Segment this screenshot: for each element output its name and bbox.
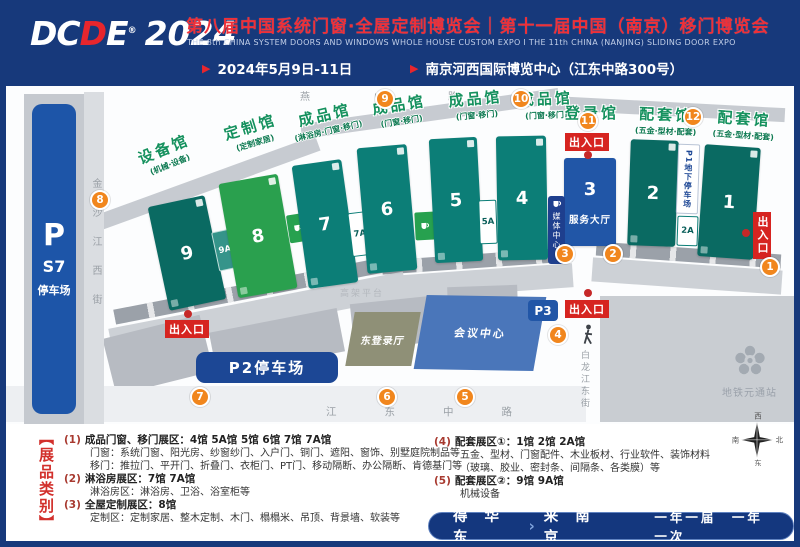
entrance-dot — [584, 151, 592, 159]
slogan-text: 得 华 东 — [453, 505, 520, 547]
pavilion-sub: (五金·型材·配套) — [695, 127, 792, 145]
compass-icon: 西 北 东 南 — [729, 410, 785, 466]
legend-item-line: 淋浴房区：淋浴房、卫浴、浴室柜等 — [90, 486, 462, 499]
legend-item-number: (4) — [434, 436, 451, 448]
entrance-dot — [184, 310, 192, 318]
compass-east: 东 — [754, 458, 761, 466]
pavilion-name: 定制馆 — [201, 103, 299, 151]
gate-5: 5 — [455, 387, 475, 407]
hall-number: 2A — [681, 226, 694, 236]
gate-2: 2 — [603, 244, 623, 264]
logo-letter: D — [80, 14, 106, 53]
gate-7: 7 — [190, 387, 210, 407]
legend-item-line: 五金、型材、门窗配件、木业板材、行业软件、装饰材料 — [460, 449, 710, 462]
gate-10: 10 — [511, 89, 531, 109]
parking-p-icon: P — [43, 221, 65, 251]
legend-item: (4)配套展区①：1馆 2馆 2A馆 五金、型材、门窗配件、木业板材、行业软件、… — [434, 436, 710, 475]
compass-north: 北 — [776, 436, 784, 445]
parking-p2: P2停车场 — [196, 352, 338, 383]
parking-label: 停车场 — [38, 282, 71, 298]
legend-item-title: 配套展区②：9馆 9A馆 — [455, 475, 564, 487]
legend-item-line: 机械设备 — [460, 488, 710, 501]
hall-number: 5 — [449, 189, 463, 211]
expo-title: 第八届中国系统门窗·全屋定制博览会｜第十一届中国（南京）移门博览会 — [186, 12, 794, 37]
legend-item-number: (1) — [64, 434, 81, 446]
hall-number: 8 — [250, 225, 266, 248]
pavilion-sub: (五金·型材·配套) — [617, 124, 713, 138]
gate-6: 6 — [377, 387, 397, 407]
parking-s7: P S7 停车场 — [32, 104, 76, 414]
date-text: 2024年5月9日-11日 — [217, 58, 352, 78]
entrance-dot — [742, 229, 750, 237]
hall-5a: 5A — [478, 200, 498, 245]
hall-2: 2 — [627, 139, 679, 247]
hall-6: 6 — [357, 144, 418, 274]
venue-map: 燕山路 金沙江西街 江东中路 白龙江东街 高架平台 P S7 停车场 9 9A … — [0, 86, 800, 424]
conference-center: 会议中心 — [414, 295, 547, 371]
gate-8: 8 — [90, 190, 110, 210]
venue-text: 南京河西国际博览中心（江东中路300号） — [425, 58, 683, 78]
slogan-bar: 得 华 东 › 来 南 京 一年一届 一年一次 — [428, 512, 794, 540]
legend-item-number: (3) — [64, 499, 81, 511]
legend-item-title: 淋浴房展区：7馆 7A馆 — [85, 473, 195, 485]
compass-west: 西 — [754, 411, 761, 420]
legend-item: (3)全屋定制展区：8馆 定制区：定制家居、整木定制、木门、榻榻米、吊顶、背景墙… — [64, 499, 462, 525]
parking-p1-underground: P1地下停车场 — [676, 144, 700, 215]
road-label-east: 白龙江东街 — [578, 350, 591, 410]
expo-venue: ▶南京河西国际博览中心（江东中路300号） — [410, 58, 683, 78]
gate-3: 3 — [555, 244, 575, 264]
platform-label: 高架平台 — [340, 286, 384, 299]
triangle-bullet-icon: ▶ — [410, 62, 418, 75]
hall-number: 5A — [482, 217, 495, 227]
pavilion-name: 设备馆 — [115, 121, 212, 176]
hall-number: 1 — [722, 191, 736, 213]
pedestrian-icon — [582, 324, 595, 346]
registered-mark: ® — [128, 26, 137, 36]
conference-label: 会议中心 — [453, 325, 508, 342]
expo-map-poster: DCDE®2024 第八届中国系统门窗·全屋定制博览会｜第十一届中国（南京）移门… — [0, 0, 800, 547]
slogan-left-group: 得 华 东 › 来 南 京 — [453, 505, 610, 547]
cup-icon — [420, 221, 430, 231]
hall-4: 4 — [496, 136, 548, 261]
expo-title-english: THE 8th CHINA SYSTEM DOORS AND WINDOWS W… — [187, 38, 795, 47]
parking-label: P2停车场 — [229, 357, 305, 378]
triangle-bullet-icon: ▶ — [202, 62, 210, 75]
hall-number: 3 — [584, 179, 597, 200]
metro-station: 地铁元通站 — [722, 344, 777, 399]
legend-item-title: 全屋定制展区：8馆 — [85, 499, 176, 511]
hall-3-service: 3服务大厅 — [564, 158, 616, 246]
gate-12: 12 — [683, 107, 703, 127]
hall-number: 9 — [179, 241, 196, 264]
gate-1: 1 — [760, 257, 780, 277]
gate-9: 9 — [375, 89, 395, 109]
parking-label: P1地下停车场 — [681, 150, 694, 209]
gate-11: 11 — [578, 111, 598, 131]
legend-item-number: (2) — [64, 473, 81, 485]
legend-item: (2)淋浴房展区：7馆 7A馆 淋浴房区：淋浴房、卫浴、浴室柜等 — [64, 473, 462, 499]
hall-number: 7 — [317, 213, 332, 236]
service-hall-label: 服务大厅 — [569, 212, 611, 226]
entrance-exit-badge: 出入口 — [565, 300, 609, 318]
legend-column-2: (4)配套展区①：1馆 2馆 2A馆 五金、型材、门窗配件、木业板材、行业软件、… — [434, 436, 710, 501]
east-login-hall: 东登录厅 — [345, 312, 421, 366]
legend-column-1: (1)成品门窗、移门展区：4馆 5A馆 5馆 6馆 7馆 7A馆 门窗：系统门窗… — [64, 434, 462, 525]
legend-item: (5)配套展区②：9馆 9A馆 机械设备 — [434, 475, 710, 501]
slogan-text: 来 南 京 — [544, 505, 611, 547]
slogan-tail: 一年一届 一年一次 — [654, 507, 769, 545]
hall-2a: 2A — [676, 216, 698, 247]
road-label-south: 江东中路 — [326, 404, 560, 419]
metro-blossom-icon — [733, 344, 767, 378]
chevron-icon: › — [529, 517, 535, 535]
legend-item-line: 门窗：系统门窗、阳光房、纱窗纱门、入户门、铜门、遮阳、窗饰、别墅庭院制品等 — [90, 447, 462, 460]
hall-number: 2 — [646, 182, 659, 203]
logo-letter: D — [30, 14, 56, 53]
parking-label: P3 — [534, 304, 551, 318]
legend-item-line: （玻璃、胶业、密封条、间隔条、各类膜）等 — [460, 462, 710, 475]
hall-8: 8 — [218, 174, 297, 299]
entrance-exit-badge: 出入口 — [753, 212, 771, 259]
entrance-exit-badge: 出入口 — [565, 133, 609, 151]
legend-item-title: 成品门窗、移门展区：4馆 5A馆 5馆 6馆 7馆 7A馆 — [85, 434, 331, 446]
legend-side-label: 【展品类别】 — [36, 430, 57, 532]
metro-station-label: 地铁元通站 — [722, 384, 777, 399]
legend-item: (1)成品门窗、移门展区：4馆 5A馆 5馆 6馆 7馆 7A馆 门窗：系统门窗… — [64, 434, 462, 473]
compass-south: 南 — [732, 435, 739, 445]
legend-item-line: 移门：推拉门、平开门、折叠门、衣柜门、PT门、移动隔断、办公隔断、肯德基门等 — [90, 460, 462, 473]
logo-letter: C — [56, 14, 79, 53]
expo-dates: ▶2024年5月9日-11日 — [202, 58, 352, 78]
legend-item-line: 定制区：定制家居、整木定制、木门、榻榻米、吊顶、背景墙、软装等 — [90, 512, 462, 525]
gate-4: 4 — [548, 325, 568, 345]
parking-p3: P3 — [528, 300, 558, 321]
entrance-exit-badge: 出入口 — [165, 320, 209, 338]
legend-item-number: (5) — [434, 475, 451, 487]
road-label-north: 燕山路 — [300, 88, 522, 103]
hall-1: 1 — [697, 144, 761, 260]
legend-item-title: 配套展区①：1馆 2馆 2A馆 — [455, 436, 585, 448]
logo-letter: E — [106, 14, 128, 53]
entrance-dot — [584, 289, 592, 297]
hall-number: 6 — [380, 198, 394, 220]
hall-number: 4 — [516, 187, 529, 208]
hall-5: 5 — [429, 137, 483, 263]
cup-icon — [552, 200, 562, 209]
header-banner: DCDE®2024 第八届中国系统门窗·全屋定制博览会｜第十一届中国（南京）移门… — [0, 0, 800, 86]
parking-code: S7 — [43, 257, 66, 276]
east-login-label: 东登录厅 — [360, 332, 407, 347]
